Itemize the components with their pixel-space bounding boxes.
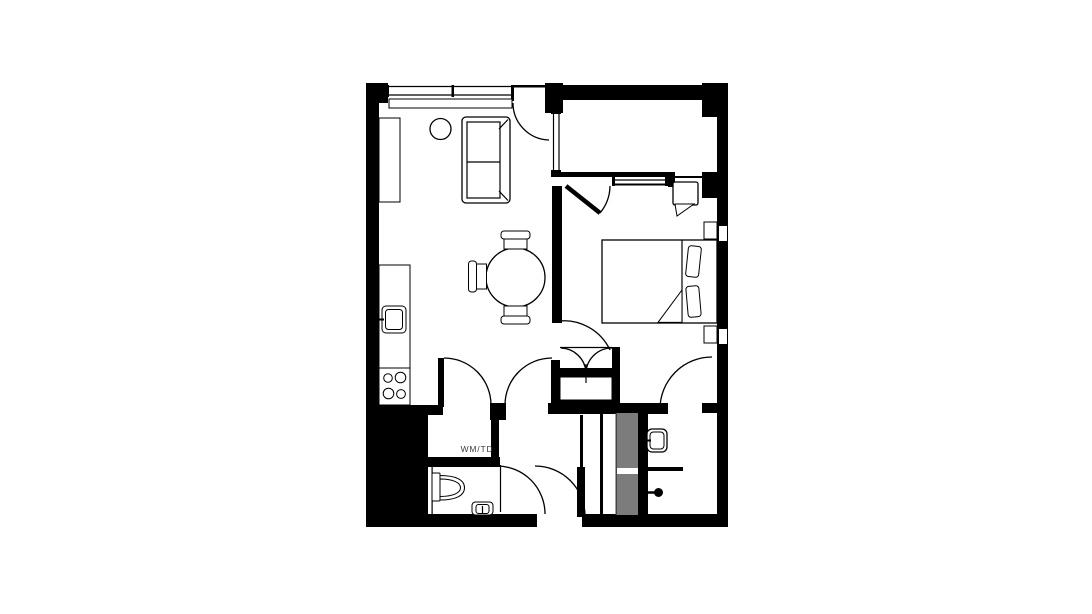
terrace-door-header xyxy=(513,85,548,88)
wall-right xyxy=(717,100,728,527)
burner xyxy=(397,390,406,399)
hand-basin-icon xyxy=(472,502,493,515)
stove-burners xyxy=(379,368,410,405)
wall-southwest-block xyxy=(366,405,428,527)
utility-shaft xyxy=(616,413,639,515)
dining-chair-left-seat xyxy=(477,264,487,289)
shower-head-dot xyxy=(654,488,663,497)
balcony-door-leaf xyxy=(566,186,600,213)
sofa xyxy=(462,117,510,203)
hall-door-arc xyxy=(505,358,552,405)
balcony-door xyxy=(566,186,610,213)
sink-basin-inner xyxy=(386,310,403,330)
wc-door xyxy=(497,465,545,514)
balcony-side-window-cap-bottom xyxy=(551,170,561,173)
dining-chair-bottom-back xyxy=(501,316,530,324)
laundry-closet-label: WM/TD xyxy=(461,444,494,454)
wall-vestibule-thick xyxy=(577,467,585,517)
shower-partition-halfwall xyxy=(643,467,683,471)
wall-bedroom-top-header xyxy=(551,172,671,177)
bedroom-door-leaf-open xyxy=(558,368,612,377)
balcony-side-window-cap-top xyxy=(551,111,561,114)
living-window xyxy=(386,85,514,108)
burner xyxy=(383,388,394,399)
bedroom-door-arc xyxy=(559,321,610,350)
floorplan-page: WM/TD xyxy=(0,0,1092,614)
wall-wardrobe-right xyxy=(612,347,620,408)
pillow xyxy=(686,285,702,317)
toilet-tank xyxy=(432,473,440,501)
bed xyxy=(602,240,717,323)
terrace-door-arc xyxy=(513,103,549,140)
bedroom xyxy=(602,182,727,344)
wc-bathroom xyxy=(432,465,494,515)
dining-chair-bottom-seat xyxy=(504,306,527,316)
wall-niche-top xyxy=(719,226,727,241)
armchair-with-throw xyxy=(673,182,698,216)
balcony-door-arc xyxy=(600,186,610,213)
wall-top-left-block xyxy=(366,83,388,103)
wall-left xyxy=(366,101,379,407)
wall-bedroom-top-thin xyxy=(675,176,702,178)
shaft-edge-line xyxy=(616,413,618,515)
wall-shaft-right xyxy=(638,413,648,517)
wall-shaft-left-line xyxy=(600,413,603,515)
floorplan-drawing: WM/TD xyxy=(0,0,1092,614)
nightstand-top xyxy=(704,222,717,239)
living-window-sill xyxy=(389,99,512,108)
burner xyxy=(384,374,393,383)
living-terrace-door xyxy=(513,85,549,140)
wall-balcony-pillar-right xyxy=(702,172,717,198)
bedroom-window xyxy=(614,180,666,185)
shaft-panel-upper xyxy=(617,413,638,468)
pillow xyxy=(685,245,701,277)
dining-table xyxy=(486,248,545,307)
armchair-throw xyxy=(675,204,694,216)
kitchen xyxy=(375,118,410,405)
dining-chair-left-back xyxy=(469,261,477,292)
wall-bottom-left xyxy=(428,514,537,527)
living-window-mullion xyxy=(452,85,455,97)
toilet-icon xyxy=(432,473,465,501)
burner xyxy=(395,372,406,383)
wall-wardrobe-bottom xyxy=(551,400,620,408)
dining-chair-top-seat xyxy=(504,239,527,249)
armchair-seat xyxy=(673,182,698,205)
shower-room-door-arc xyxy=(660,357,712,409)
round-side-table xyxy=(430,119,451,140)
washbasin-inner xyxy=(650,432,664,449)
laundry-door-arc xyxy=(444,358,491,405)
stove-outline xyxy=(379,368,410,405)
living-window-jamb-left xyxy=(386,85,389,97)
nightstand-bottom xyxy=(704,326,717,343)
living-room xyxy=(430,117,545,324)
wall-living-bedroom-divider xyxy=(552,186,562,323)
dining-chair-top-back xyxy=(501,231,530,239)
tall-cabinet xyxy=(379,118,400,202)
shaft-panel-lower xyxy=(617,474,638,515)
wall-bottom-right xyxy=(582,514,728,527)
sofa-outline xyxy=(462,117,510,203)
wall-shower-door-post xyxy=(702,403,717,413)
dining-set xyxy=(469,231,546,324)
wall-vestibule-thin xyxy=(580,415,583,467)
wall-laundry-bottom xyxy=(428,457,500,467)
wall-niche-bottom xyxy=(719,329,727,344)
balcony-side-window xyxy=(551,111,561,173)
wc-door-arc xyxy=(497,466,545,514)
living-door-leaf-open xyxy=(438,358,444,407)
